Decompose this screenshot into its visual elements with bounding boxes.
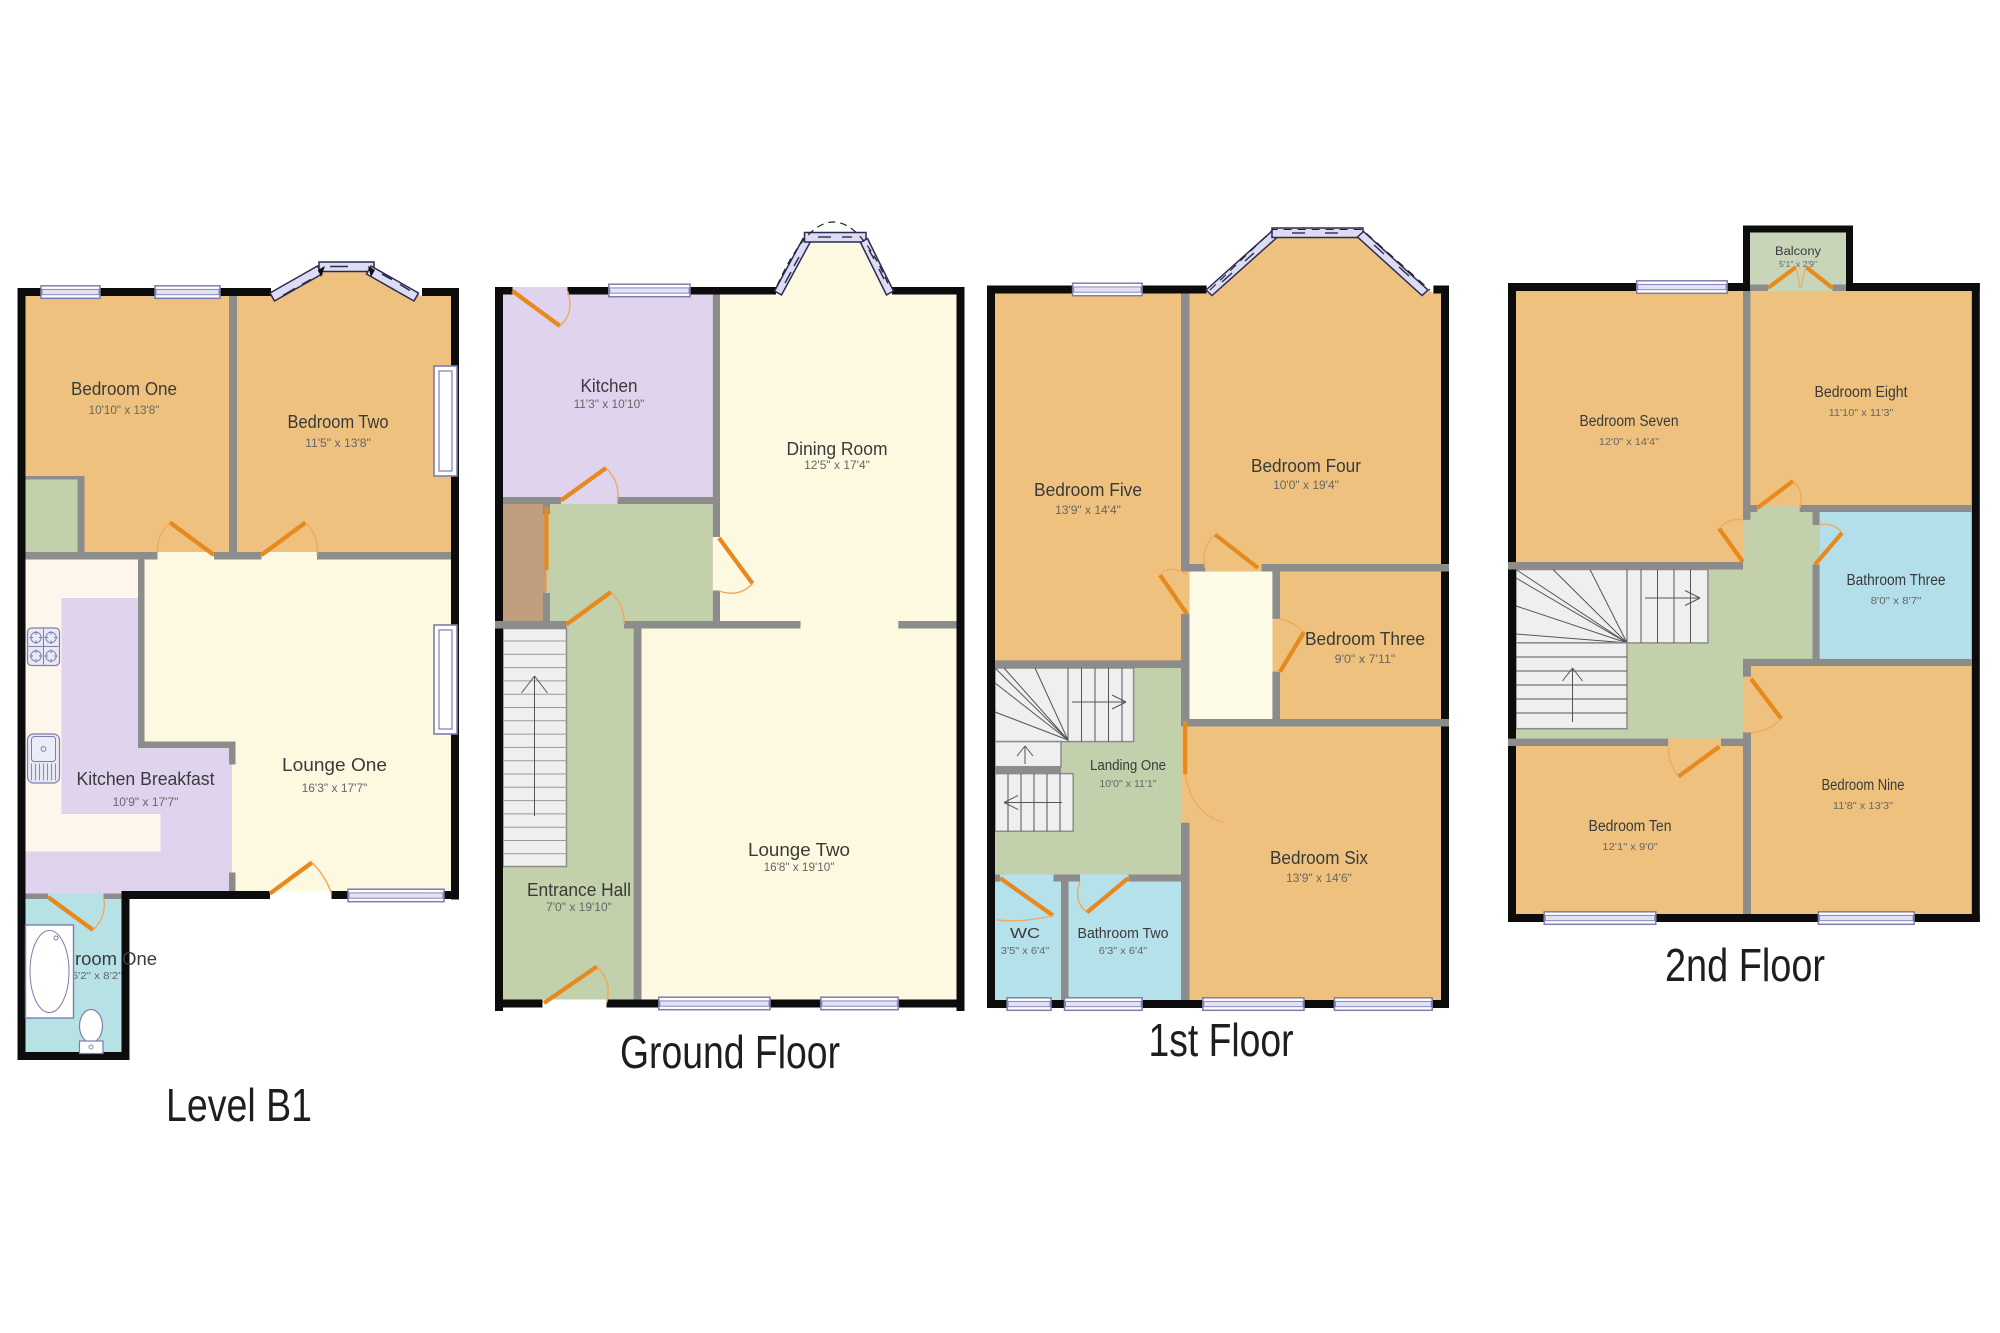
svg-text:12'5" x 17'4": 12'5" x 17'4" xyxy=(804,460,870,472)
svg-text:Ground Floor: Ground Floor xyxy=(620,1026,840,1078)
svg-text:12'0" x 14'4": 12'0" x 14'4" xyxy=(1599,436,1659,448)
svg-text:13'9" x 14'6": 13'9" x 14'6" xyxy=(1286,873,1352,885)
svg-text:1st Floor: 1st Floor xyxy=(1149,1014,1294,1066)
svg-text:10'10" x 13'8": 10'10" x 13'8" xyxy=(89,405,160,417)
svg-text:13'9" x 14'4": 13'9" x 14'4" xyxy=(1055,505,1121,517)
svg-text:Bedroom Three: Bedroom Three xyxy=(1305,629,1425,649)
svg-text:Bedroom Four: Bedroom Four xyxy=(1251,456,1361,476)
svg-text:Lounge One: Lounge One xyxy=(282,755,387,775)
svg-text:8'0" x 8'7": 8'0" x 8'7" xyxy=(1871,595,1922,607)
svg-text:Bedroom Six: Bedroom Six xyxy=(1270,848,1368,868)
svg-text:Entrance Hall: Entrance Hall xyxy=(527,880,631,900)
svg-text:Bedroom Two: Bedroom Two xyxy=(288,412,389,432)
svg-text:11'8" x 13'3": 11'8" x 13'3" xyxy=(1833,800,1893,812)
svg-text:Lounge Two: Lounge Two xyxy=(748,840,850,860)
svg-text:3'5" x 6'4": 3'5" x 6'4" xyxy=(1001,946,1050,957)
svg-text:9'0" x 7'11": 9'0" x 7'11" xyxy=(1335,654,1396,666)
svg-text:Bedroom One: Bedroom One xyxy=(71,379,177,399)
svg-text:Bedroom Five: Bedroom Five xyxy=(1034,480,1142,500)
svg-text:WC: WC xyxy=(1010,925,1040,942)
svg-text:2nd Floor: 2nd Floor xyxy=(1665,939,1825,991)
svg-text:Landing One: Landing One xyxy=(1090,757,1166,774)
svg-text:Bedroom Eight: Bedroom Eight xyxy=(1815,384,1909,401)
svg-text:10'0" x 19'4": 10'0" x 19'4" xyxy=(1273,480,1339,492)
svg-text:12'1" x 9'0": 12'1" x 9'0" xyxy=(1602,841,1658,853)
svg-text:16'8" x 19'10": 16'8" x 19'10" xyxy=(764,862,835,874)
svg-text:Bathroom Two: Bathroom Two xyxy=(1078,925,1169,942)
svg-text:10'9" x 17'7": 10'9" x 17'7" xyxy=(113,797,179,809)
svg-text:Kitchen Breakfast: Kitchen Breakfast xyxy=(77,769,215,789)
svg-text:5'2" x 8'2": 5'2" x 8'2" xyxy=(72,970,123,982)
svg-text:7'0" x 19'10": 7'0" x 19'10" xyxy=(546,902,612,914)
svg-text:5'1" x 2'9": 5'1" x 2'9" xyxy=(1779,260,1817,269)
svg-text:Kitchen: Kitchen xyxy=(581,376,638,396)
svg-text:Dining Room: Dining Room xyxy=(787,439,888,459)
svg-text:10'0" x 11'1": 10'0" x 11'1" xyxy=(1099,779,1157,790)
svg-text:Bedroom Seven: Bedroom Seven xyxy=(1580,413,1679,430)
svg-text:Level B1: Level B1 xyxy=(166,1079,312,1131)
svg-text:11'10" x 11'3": 11'10" x 11'3" xyxy=(1829,407,1894,419)
svg-text:11'5" x 13'8": 11'5" x 13'8" xyxy=(305,438,371,450)
svg-text:Bathroom Three: Bathroom Three xyxy=(1847,572,1946,589)
svg-text:16'3" x 17'7": 16'3" x 17'7" xyxy=(302,783,368,795)
svg-text:11'3" x 10'10": 11'3" x 10'10" xyxy=(574,399,645,411)
svg-text:6'3" x 6'4": 6'3" x 6'4" xyxy=(1099,946,1148,957)
svg-text:Bedroom Nine: Bedroom Nine xyxy=(1822,777,1905,794)
svg-text:Balcony: Balcony xyxy=(1775,246,1821,258)
svg-text:Bedroom Ten: Bedroom Ten xyxy=(1589,818,1672,835)
